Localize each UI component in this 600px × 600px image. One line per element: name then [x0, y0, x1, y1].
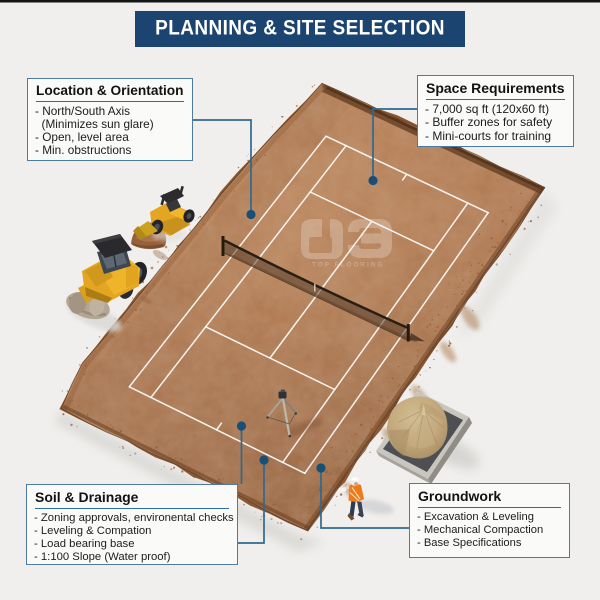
- svg-text:TOP FLOORING: TOP FLOORING: [312, 262, 384, 269]
